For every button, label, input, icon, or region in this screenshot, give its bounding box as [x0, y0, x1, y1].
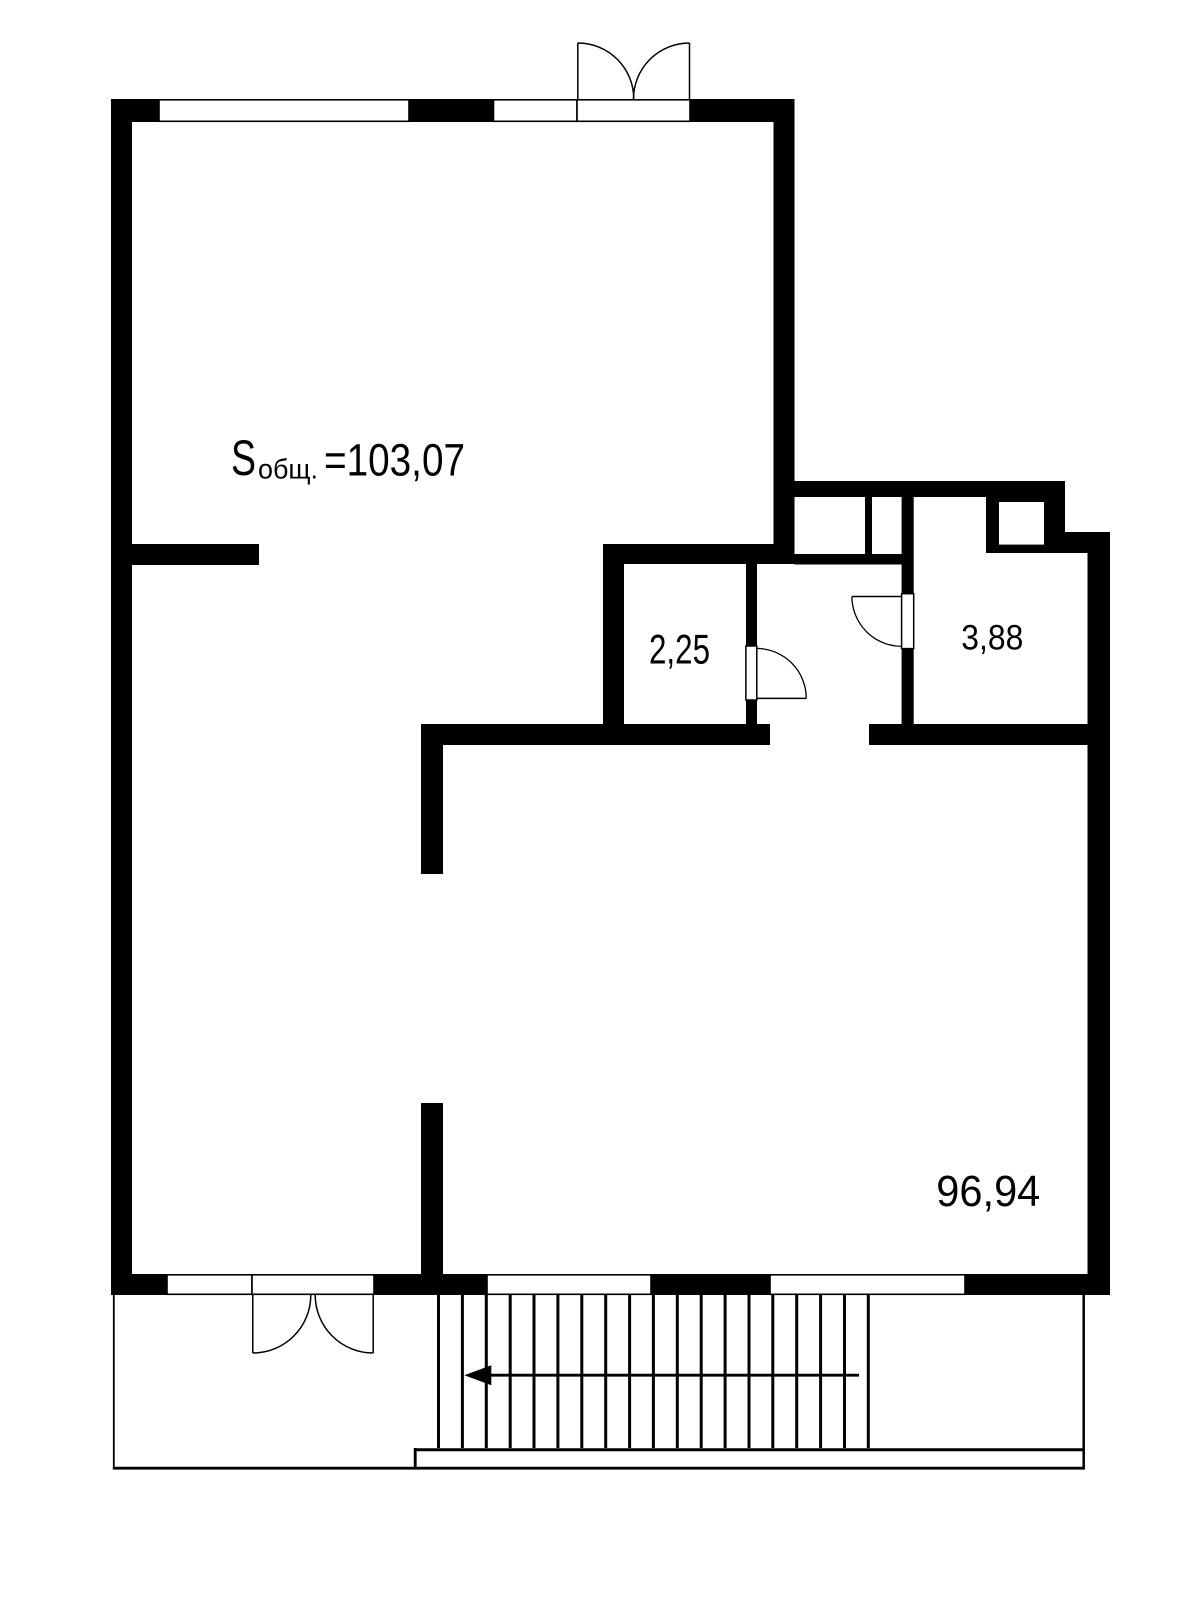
svg-text:общ.: общ.: [258, 454, 318, 485]
svg-text:3,88: 3,88: [961, 618, 1023, 658]
svg-text:2,25: 2,25: [649, 625, 710, 672]
svg-text:=103,07: =103,07: [324, 435, 465, 486]
svg-text:S: S: [231, 430, 256, 486]
svg-text:96,94: 96,94: [936, 1167, 1040, 1216]
